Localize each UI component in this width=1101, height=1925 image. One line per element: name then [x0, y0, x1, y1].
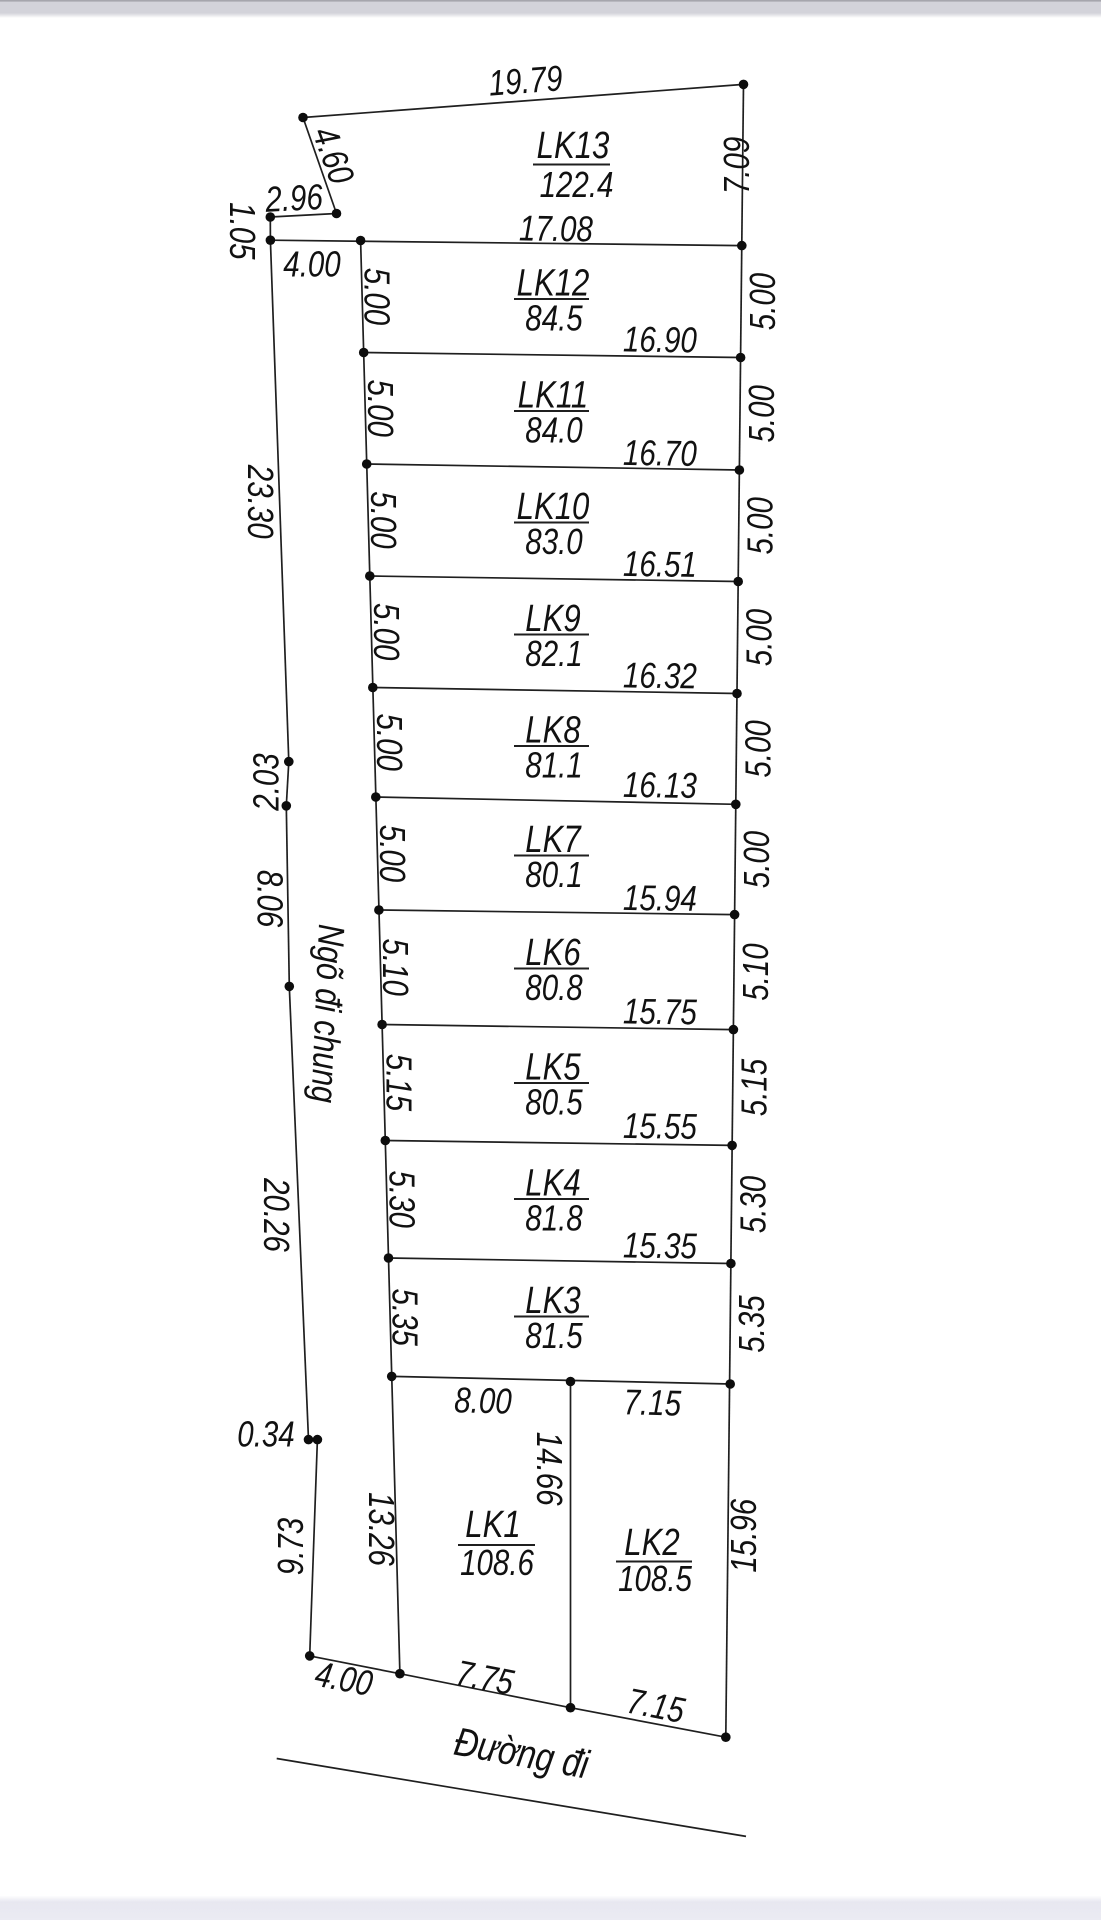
- svg-text:LK1: LK1: [465, 1504, 520, 1546]
- svg-text:5.00: 5.00: [740, 496, 780, 554]
- svg-text:17.08: 17.08: [519, 208, 594, 249]
- svg-text:4.00: 4.00: [283, 244, 341, 284]
- svg-text:5.00: 5.00: [357, 268, 397, 326]
- svg-text:84.0: 84.0: [525, 410, 583, 450]
- svg-text:5.00: 5.00: [372, 825, 412, 883]
- svg-text:5.30: 5.30: [382, 1170, 422, 1228]
- svg-text:16.90: 16.90: [623, 319, 698, 360]
- svg-text:5.00: 5.00: [369, 713, 409, 771]
- svg-text:84.5: 84.5: [525, 298, 583, 338]
- svg-text:5.00: 5.00: [742, 272, 782, 330]
- svg-text:83.0: 83.0: [525, 521, 583, 561]
- svg-text:2.96: 2.96: [263, 176, 324, 219]
- svg-text:15.35: 15.35: [623, 1225, 698, 1266]
- svg-text:5.00: 5.00: [741, 384, 781, 442]
- svg-text:15.94: 15.94: [623, 877, 697, 918]
- svg-text:7.09: 7.09: [716, 137, 756, 194]
- svg-text:Ngõ đi chung: Ngõ đi chung: [303, 923, 352, 1104]
- svg-text:5.15: 5.15: [734, 1058, 774, 1116]
- svg-text:15.55: 15.55: [623, 1105, 698, 1146]
- svg-text:80.1: 80.1: [525, 854, 582, 894]
- svg-text:5.00: 5.00: [737, 720, 777, 778]
- svg-text:108.6: 108.6: [460, 1542, 534, 1582]
- svg-text:8.06: 8.06: [250, 870, 290, 928]
- svg-text:19.79: 19.79: [487, 57, 564, 103]
- svg-text:5.00: 5.00: [736, 830, 776, 888]
- svg-text:5.00: 5.00: [739, 608, 779, 666]
- svg-text:15.96: 15.96: [723, 1498, 763, 1572]
- svg-text:5.00: 5.00: [366, 603, 406, 661]
- svg-text:81.5: 81.5: [525, 1315, 583, 1355]
- svg-text:0.34: 0.34: [237, 1414, 294, 1454]
- svg-text:82.1: 82.1: [525, 633, 582, 673]
- svg-text:20.26: 20.26: [256, 1177, 296, 1252]
- svg-text:13.26: 13.26: [361, 1492, 401, 1566]
- svg-text:122.4: 122.4: [540, 164, 614, 204]
- svg-text:16.13: 16.13: [623, 764, 698, 805]
- svg-text:5.30: 5.30: [733, 1175, 773, 1233]
- svg-text:8.00: 8.00: [454, 1379, 513, 1421]
- svg-text:LK13: LK13: [537, 125, 610, 167]
- svg-text:5.15: 5.15: [379, 1054, 419, 1112]
- svg-text:1.05: 1.05: [222, 202, 262, 260]
- svg-text:5.35: 5.35: [731, 1295, 771, 1353]
- svg-text:16.32: 16.32: [623, 655, 697, 696]
- svg-text:14.66: 14.66: [529, 1432, 569, 1506]
- svg-text:2.03: 2.03: [246, 753, 286, 812]
- svg-text:16.51: 16.51: [623, 543, 697, 584]
- svg-text:81.1: 81.1: [525, 745, 582, 785]
- svg-text:5.35: 5.35: [385, 1288, 425, 1346]
- svg-text:5.00: 5.00: [363, 491, 403, 549]
- svg-text:5.00: 5.00: [360, 379, 400, 437]
- svg-text:80.5: 80.5: [525, 1082, 583, 1122]
- svg-text:7.15: 7.15: [623, 1381, 682, 1423]
- svg-text:5.10: 5.10: [735, 943, 775, 1001]
- svg-text:81.8: 81.8: [525, 1198, 583, 1238]
- svg-text:23.30: 23.30: [240, 464, 280, 539]
- svg-text:9.73: 9.73: [270, 1517, 310, 1575]
- svg-text:108.5: 108.5: [618, 1558, 692, 1598]
- svg-text:5.10: 5.10: [375, 938, 415, 996]
- svg-text:16.70: 16.70: [623, 432, 698, 473]
- svg-text:80.8: 80.8: [525, 967, 583, 1007]
- svg-text:15.75: 15.75: [623, 991, 698, 1032]
